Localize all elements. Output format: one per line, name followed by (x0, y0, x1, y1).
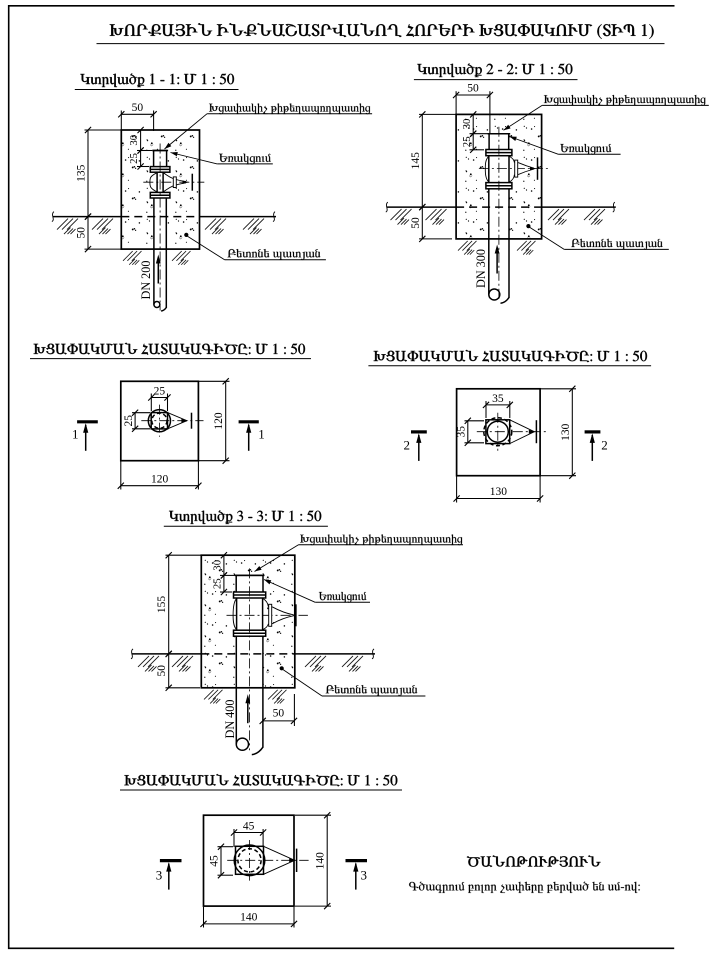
svg-text:50: 50 (156, 665, 168, 677)
svg-text:155: 155 (156, 596, 168, 614)
svg-text:3: 3 (361, 867, 368, 882)
svg-text:120: 120 (213, 412, 225, 430)
svg-text:2: 2 (404, 438, 411, 453)
svg-text:1: 1 (258, 427, 265, 442)
svg-text:45: 45 (209, 855, 221, 867)
svg-text:50: 50 (273, 707, 285, 719)
svg-text:DN 300: DN 300 (474, 249, 488, 288)
svg-text:3: 3 (156, 867, 163, 882)
svg-text:25: 25 (128, 153, 140, 164)
svg-text:DN 400: DN 400 (223, 700, 237, 739)
svg-text:30: 30 (461, 119, 473, 130)
svg-text:135: 135 (76, 164, 88, 182)
svg-text:35: 35 (455, 426, 467, 438)
svg-text:35: 35 (492, 393, 504, 405)
svg-text:50: 50 (467, 83, 479, 95)
svg-text:50: 50 (410, 217, 422, 229)
svg-text:25: 25 (461, 136, 473, 147)
svg-text:45: 45 (243, 820, 255, 832)
svg-text:140: 140 (315, 852, 327, 870)
svg-text:1: 1 (72, 427, 79, 442)
svg-text:145: 145 (410, 152, 422, 170)
svg-text:25: 25 (212, 578, 224, 589)
svg-text:30: 30 (128, 135, 140, 146)
svg-text:25: 25 (123, 415, 135, 427)
svg-text:DN 200: DN 200 (139, 261, 153, 300)
svg-text:120: 120 (151, 473, 169, 485)
svg-text:130: 130 (490, 486, 508, 498)
svg-text:30: 30 (212, 560, 224, 571)
svg-text:130: 130 (560, 423, 572, 441)
svg-text:50: 50 (76, 227, 88, 239)
svg-text:25: 25 (154, 386, 166, 398)
svg-text:2: 2 (601, 438, 608, 453)
svg-text:50: 50 (132, 102, 144, 114)
svg-text:140: 140 (240, 912, 258, 924)
